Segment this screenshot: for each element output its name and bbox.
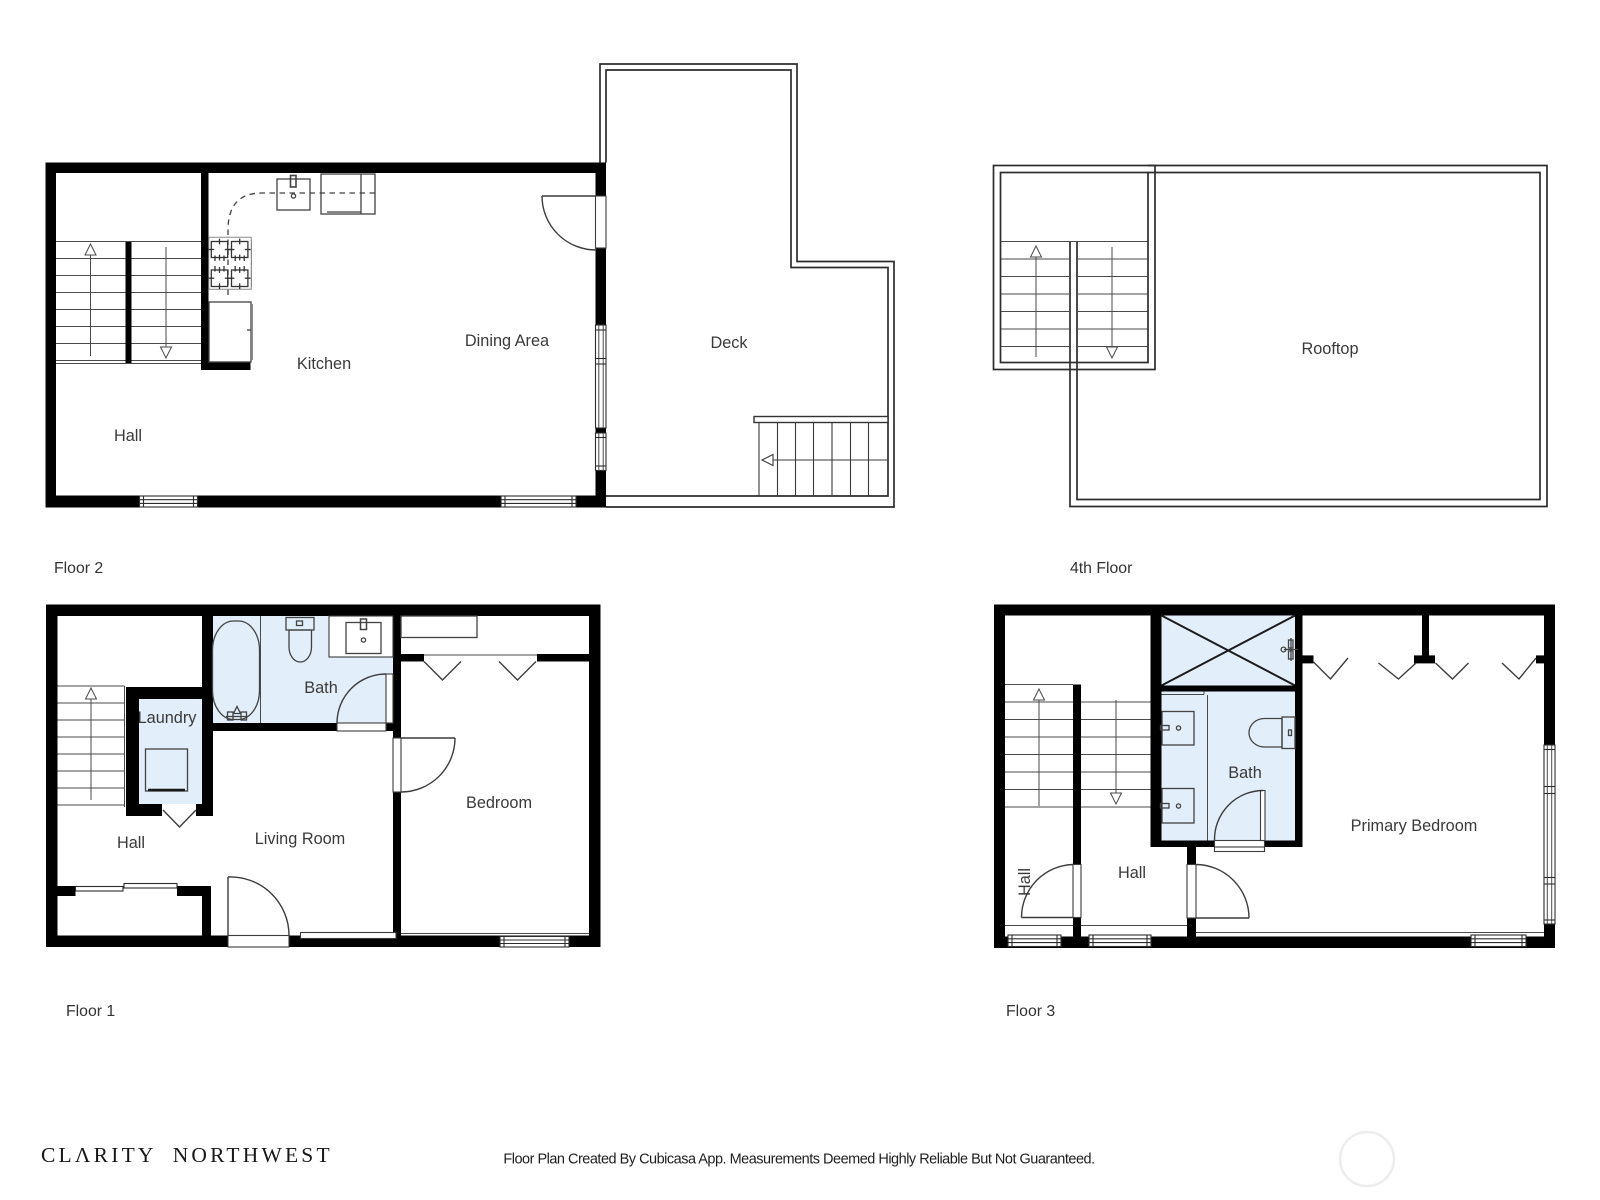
svg-text:Dining Area: Dining Area <box>465 332 550 350</box>
svg-text:Laundry: Laundry <box>138 709 198 727</box>
svg-text:Bath: Bath <box>1228 764 1262 782</box>
svg-text:Floor 3: Floor 3 <box>1006 1003 1055 1020</box>
svg-text:Kitchen: Kitchen <box>297 355 351 373</box>
svg-text:Hall: Hall <box>1118 864 1146 882</box>
svg-text:Living Room: Living Room <box>255 830 346 848</box>
svg-text:CLΛRITY NORTHWEST: CLΛRITY NORTHWEST <box>41 1143 333 1167</box>
svg-text:Bedroom: Bedroom <box>466 794 532 812</box>
svg-text:Floor Plan Created By Cubicasa: Floor Plan Created By Cubicasa App. Meas… <box>503 1152 1094 1168</box>
svg-text:Floor 2: Floor 2 <box>54 560 103 577</box>
svg-text:Hall: Hall <box>114 427 142 445</box>
svg-text:Deck: Deck <box>710 334 748 352</box>
svg-text:Floor 1: Floor 1 <box>66 1003 115 1020</box>
svg-text:Hall: Hall <box>1016 868 1034 896</box>
svg-text:Hall: Hall <box>117 834 145 852</box>
svg-text:Rooftop: Rooftop <box>1301 340 1358 358</box>
svg-text:Bath: Bath <box>304 679 338 697</box>
svg-text:4th Floor: 4th Floor <box>1070 560 1132 577</box>
svg-text:Primary Bedroom: Primary Bedroom <box>1351 817 1478 835</box>
